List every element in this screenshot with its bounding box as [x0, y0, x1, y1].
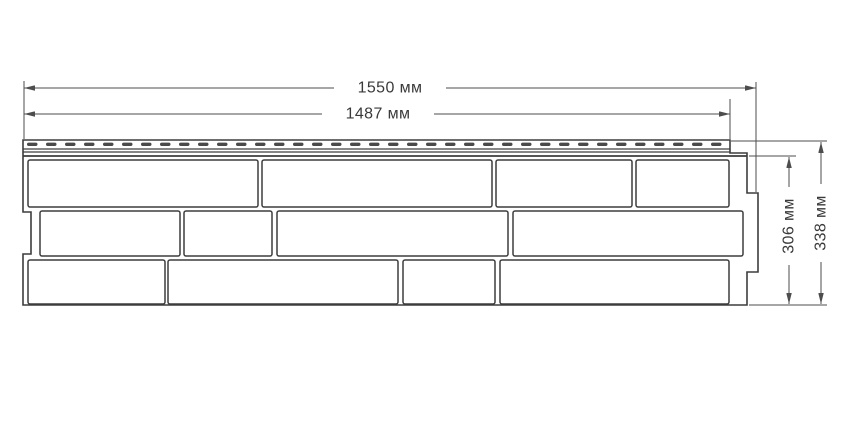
dimension-label-total-height: 338 мм [813, 195, 830, 251]
perforation-slot [540, 143, 551, 146]
perforation-slot [179, 143, 190, 146]
brick-r1-c3 [496, 160, 632, 207]
perforation-slot [388, 143, 399, 146]
brick-r3-c2 [168, 260, 398, 304]
brick-row-1 [28, 160, 729, 207]
perforation-slot [483, 143, 494, 146]
dimension-total-width: 1550 мм [24, 79, 756, 97]
brick-row-3 [28, 260, 729, 304]
panel-dimension-drawing: 1550 мм 1487 мм 306 мм 338 мм [0, 0, 850, 425]
brick-r1-c1 [28, 160, 258, 207]
brick-r1-c2 [262, 160, 492, 207]
dimension-label-total-width: 1550 мм [358, 80, 423, 97]
drawing-canvas: 1550 мм 1487 мм 306 мм 338 мм [0, 0, 850, 425]
dimension-panel-height: 306 мм [780, 157, 798, 304]
perforation-slot [407, 143, 418, 146]
perforation-slot [274, 143, 285, 146]
perforation-slot [27, 143, 38, 146]
perforation-slot [84, 143, 95, 146]
perforation-slot [198, 143, 209, 146]
perforation-slot [65, 143, 76, 146]
perforation-slot [331, 143, 342, 146]
perforation-slot [46, 143, 57, 146]
perforation-slot [217, 143, 228, 146]
dimension-label-nail-strip-width: 1487 мм [346, 106, 411, 123]
brick-r3-c4 [500, 260, 729, 304]
nail-strip-perforations [27, 143, 722, 146]
brick-r3-c1 [28, 260, 165, 304]
perforation-slot [255, 143, 266, 146]
brick-r3-c3 [403, 260, 495, 304]
dimension-total-height: 338 мм [812, 142, 830, 304]
brick-r2-c2 [184, 211, 272, 256]
perforation-slot [654, 143, 665, 146]
perforation-slot [502, 143, 513, 146]
perforation-slot [673, 143, 684, 146]
perforation-slot [160, 143, 171, 146]
perforation-slot [369, 143, 380, 146]
perforation-slot [578, 143, 589, 146]
perforation-slot [103, 143, 114, 146]
brick-r1-c4 [636, 160, 729, 207]
dimension-label-panel-height: 306 мм [781, 198, 798, 254]
perforation-slot [711, 143, 722, 146]
brick-r2-c3 [277, 211, 508, 256]
perforation-slot [521, 143, 532, 146]
brick-r2-c1 [40, 211, 180, 256]
perforation-slot [293, 143, 304, 146]
perforation-slot [692, 143, 703, 146]
siding-panel [23, 140, 758, 305]
perforation-slot [350, 143, 361, 146]
brick-row-2 [40, 211, 743, 256]
perforation-slot [122, 143, 133, 146]
perforation-slot [635, 143, 646, 146]
perforation-slot [445, 143, 456, 146]
perforation-slot [616, 143, 627, 146]
perforation-slot [236, 143, 247, 146]
perforation-slot [426, 143, 437, 146]
perforation-slot [464, 143, 475, 146]
perforation-slot [312, 143, 323, 146]
perforation-slot [141, 143, 152, 146]
dimension-nail-strip-width: 1487 мм [24, 105, 730, 123]
perforation-slot [597, 143, 608, 146]
brick-r2-c4 [513, 211, 743, 256]
perforation-slot [559, 143, 570, 146]
